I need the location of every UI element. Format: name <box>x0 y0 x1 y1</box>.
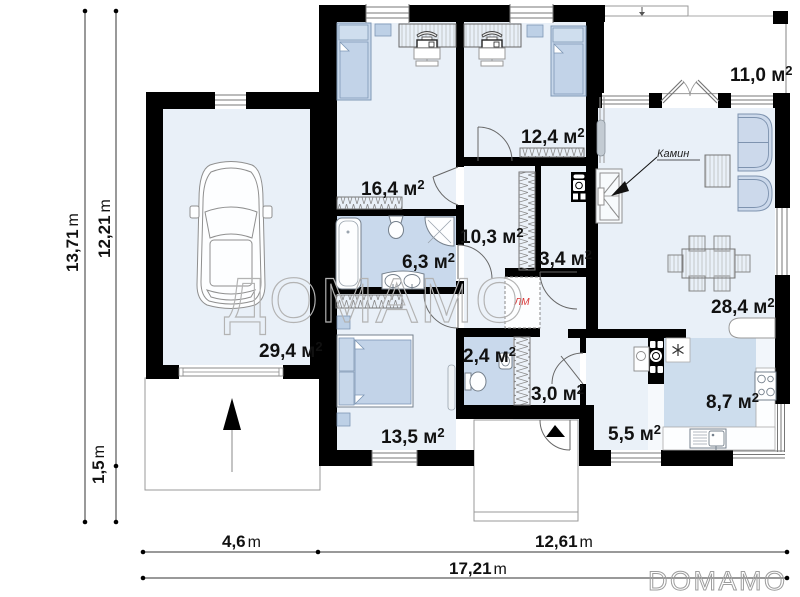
svg-text:29,4 м2: 29,4 м2 <box>259 339 323 362</box>
svg-text:8,7 м2: 8,7 м2 <box>706 390 759 413</box>
svg-text:10,3 м2: 10,3 м2 <box>460 225 524 248</box>
svg-text:Камин: Камин <box>657 148 689 160</box>
svg-text:11,0 м2: 11,0 м2 <box>730 63 793 86</box>
svg-text:3,4 м2: 3,4 м2 <box>539 247 592 270</box>
svg-text:13,5 м2: 13,5 м2 <box>381 425 445 448</box>
svg-text:16,4 м2: 16,4 м2 <box>361 177 425 200</box>
svg-text:4,6m: 4,6m <box>222 532 261 551</box>
svg-text:12,61m: 12,61m <box>535 532 593 551</box>
svg-text:17,21m: 17,21m <box>449 559 507 578</box>
svg-text:2,4 м2: 2,4 м2 <box>463 344 516 367</box>
svg-text:DOMAMO: DOMAMO <box>648 566 788 596</box>
svg-text:13,71m: 13,71m <box>63 213 82 272</box>
svg-text:1,5m: 1,5m <box>89 445 108 484</box>
svg-text:5,5 м2: 5,5 м2 <box>608 422 661 445</box>
svg-text:28,4 м2: 28,4 м2 <box>711 295 775 318</box>
svg-text:ДОМАМО: ДОМАМО <box>224 266 527 336</box>
svg-text:3,0 м2: 3,0 м2 <box>531 382 584 405</box>
svg-text:12,21m: 12,21m <box>95 199 114 258</box>
svg-text:12,4 м2: 12,4 м2 <box>521 125 585 148</box>
